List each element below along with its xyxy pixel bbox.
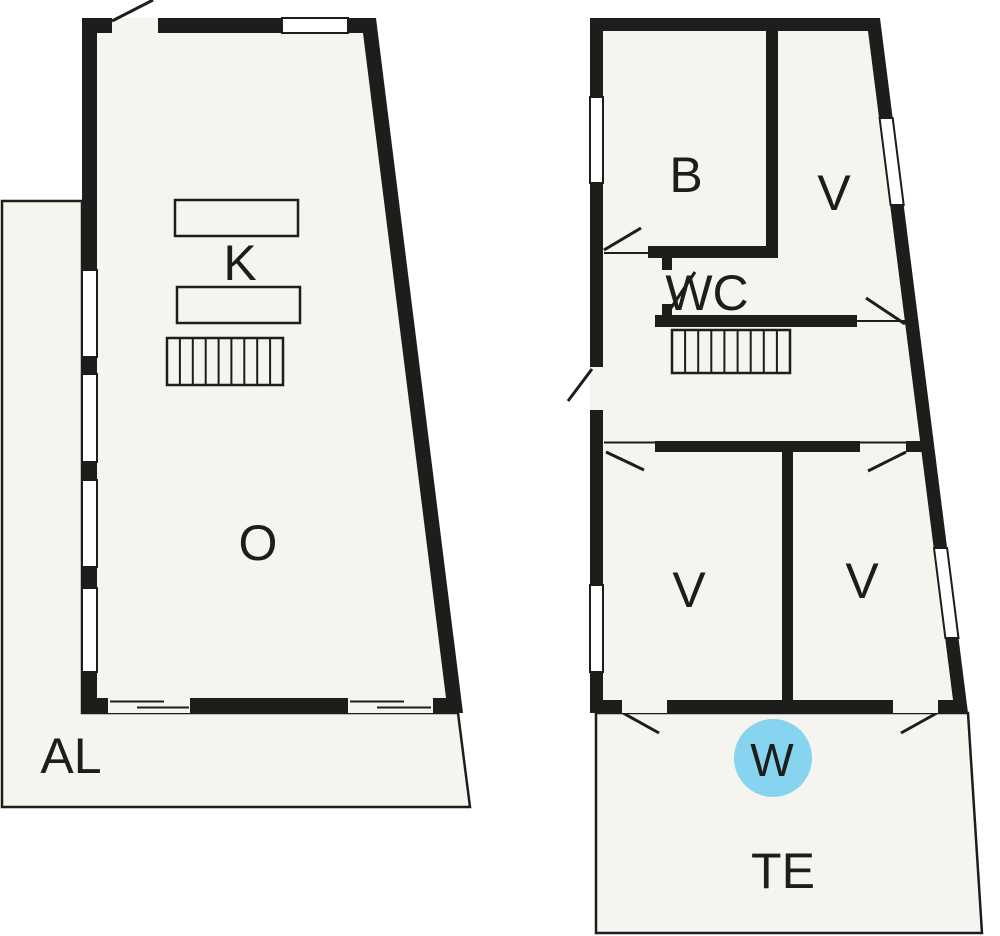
window [82, 588, 97, 672]
window [82, 374, 97, 462]
window [590, 585, 603, 672]
terrace-door-opening [893, 700, 938, 713]
room-label-k: K [223, 235, 256, 291]
window [82, 480, 97, 567]
ground-floor-plan: K O AL [2, 0, 470, 807]
ground-entry-opening [112, 18, 158, 33]
ground-entry-door-swing [112, 0, 153, 21]
door-swing-entry [568, 369, 592, 401]
room-label-v-bottom-right: V [845, 553, 879, 609]
wall-v-v-divider [782, 452, 793, 700]
wall-hall-bottom [655, 441, 860, 452]
kitchen-counter [177, 287, 300, 323]
room-label-b: B [669, 147, 702, 203]
room-label-v-bottom-left: V [672, 562, 706, 618]
wall-b-v-divider [766, 31, 778, 258]
room-label-w: W [750, 734, 794, 786]
window [590, 97, 603, 183]
room-label-al: AL [40, 728, 101, 784]
stairs [672, 330, 790, 373]
window [282, 18, 348, 33]
stairs [167, 338, 283, 385]
upper-entry-opening [590, 367, 603, 410]
room-label-wc: WC [665, 265, 748, 321]
upper-floor-plan: B V WC V V W TE [568, 18, 982, 933]
terrace-door-opening [622, 700, 667, 713]
sliding-door-opening [108, 698, 190, 713]
wall-hall-bottom-stub [906, 441, 922, 452]
wall-b-bottom [648, 246, 778, 258]
room-label-o: O [239, 515, 278, 571]
room-label-v-top: V [817, 165, 851, 221]
floorplan-canvas: K O AL [0, 0, 1000, 936]
floorplan-drawing: K O AL [0, 0, 1000, 936]
sliding-door-opening [348, 698, 433, 713]
room-label-te: TE [751, 843, 815, 899]
kitchen-counter [175, 200, 298, 236]
window [82, 270, 97, 357]
